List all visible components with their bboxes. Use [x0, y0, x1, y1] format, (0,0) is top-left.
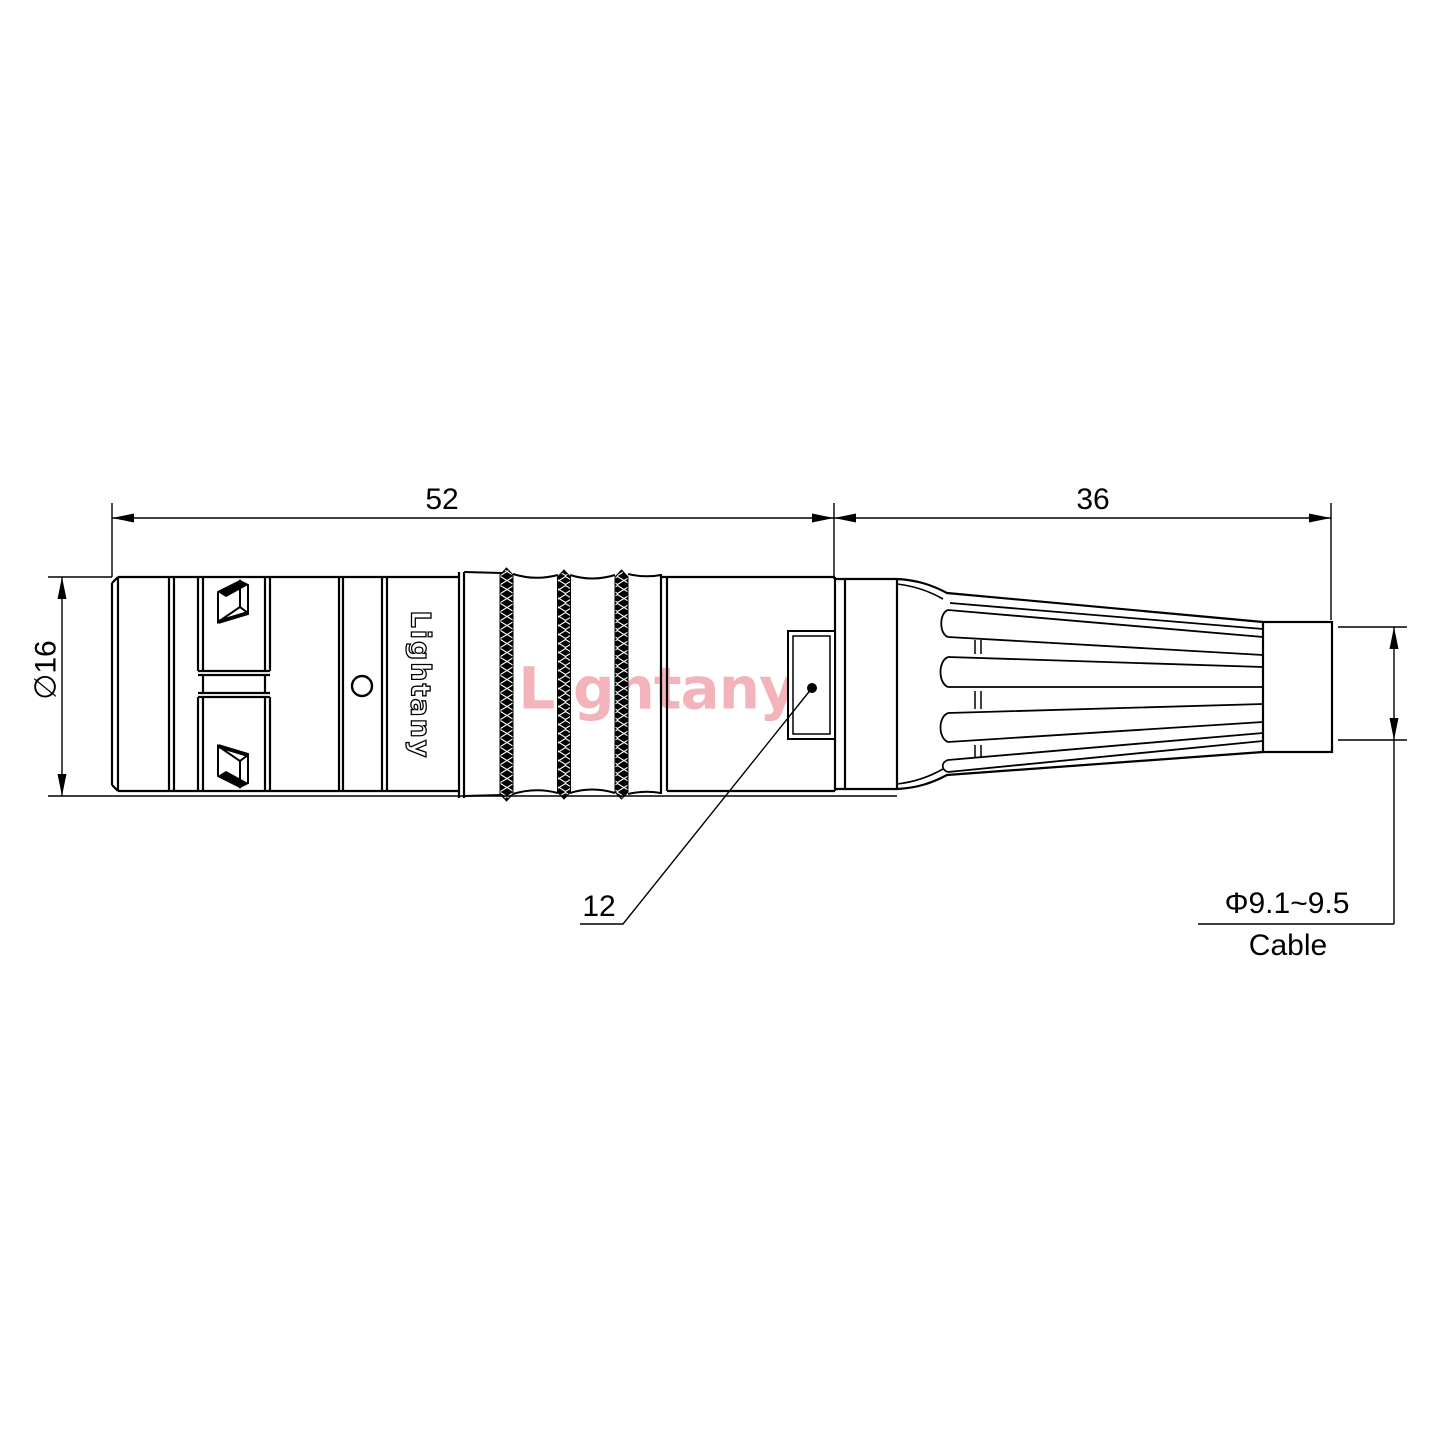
pilot-hole — [352, 676, 372, 696]
connector-technical-drawing: Lightany — [0, 0, 1440, 1440]
dim-body-diameter-label: ∅16 — [30, 640, 63, 700]
knurl-band-3 — [615, 570, 628, 799]
dim-cable-diameter-label: Φ9.1~9.5 — [1225, 887, 1350, 920]
dim-window-size-label: 12 — [582, 890, 615, 923]
leader-dot — [807, 683, 817, 693]
brand-engraving: Lightany — [405, 611, 436, 760]
knurl-band-1 — [500, 568, 513, 801]
cable-entry-cylinder — [1263, 622, 1332, 752]
knurl-band-2 — [558, 570, 571, 799]
technical-drawing-page: Lightany — [0, 0, 1440, 1440]
cable-label: Cable — [1249, 929, 1327, 962]
dim-boot-length-label: 36 — [1076, 483, 1109, 516]
dim-body-length-label: 52 — [425, 483, 458, 516]
